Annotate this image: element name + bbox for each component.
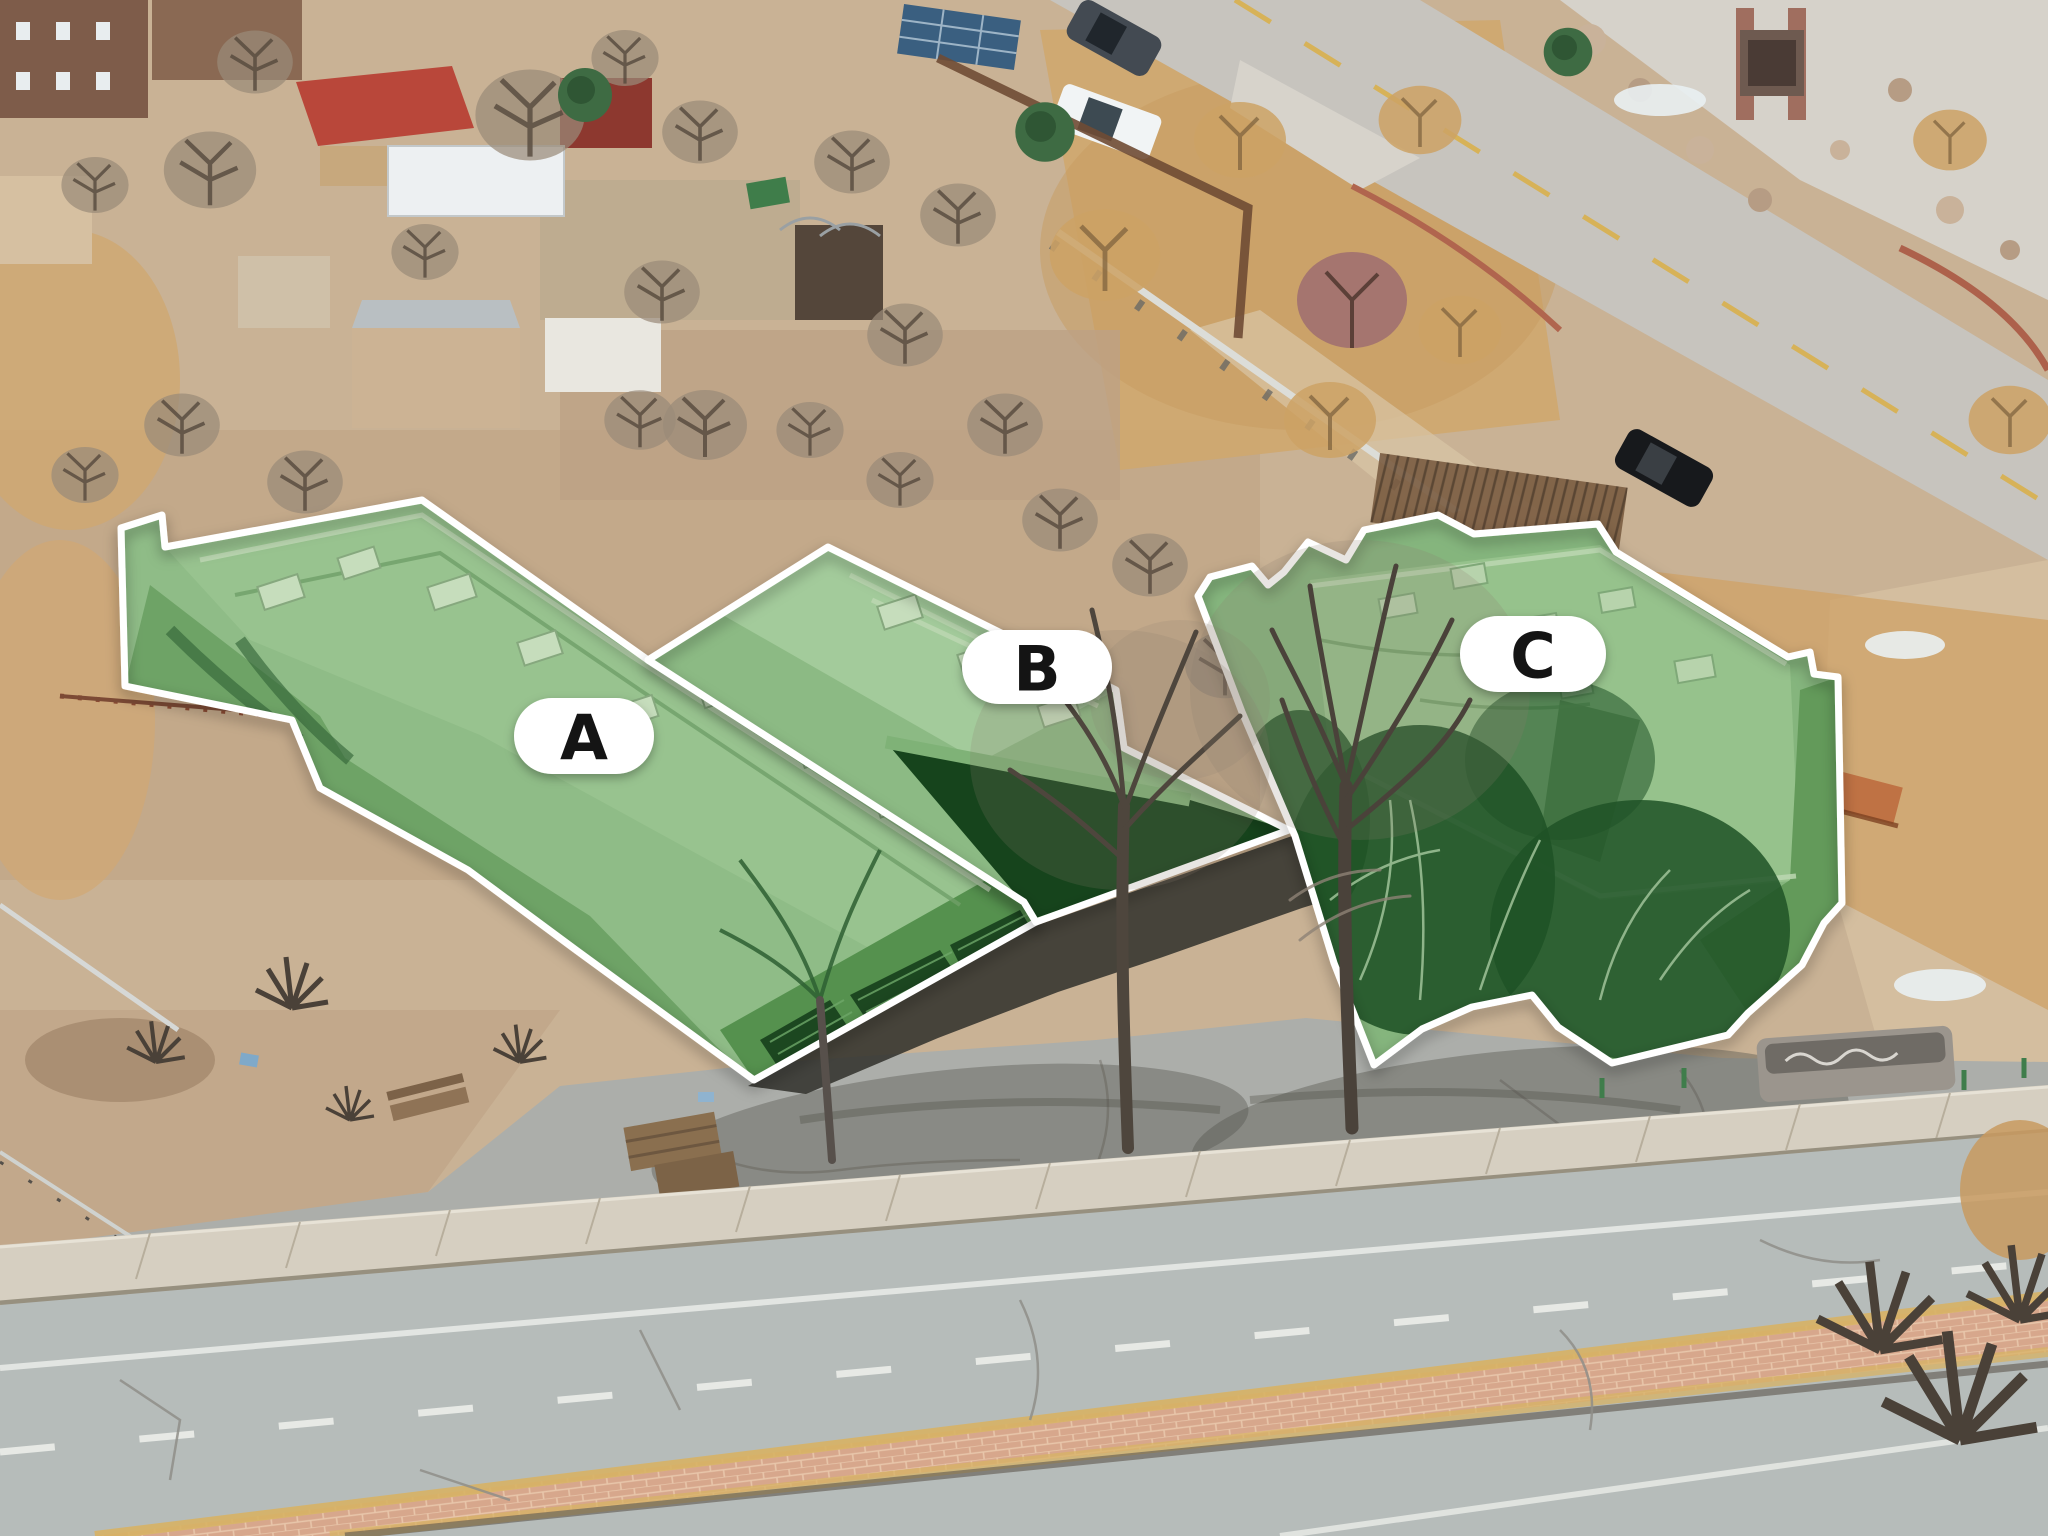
label-b-text: B xyxy=(1013,633,1060,706)
white-shed xyxy=(545,318,661,392)
label-pill-a: A xyxy=(514,698,654,775)
adobe-house xyxy=(352,328,520,428)
blue-debris xyxy=(698,1092,714,1102)
dark-shed xyxy=(795,225,883,320)
apartment-building xyxy=(0,0,148,118)
label-c-text: C xyxy=(1510,620,1556,693)
snow-patch xyxy=(1865,631,1945,659)
aerial-photo: A B C xyxy=(0,0,2048,1536)
snow-patch xyxy=(1894,969,1986,1001)
label-pill-c: C xyxy=(1460,616,1606,693)
rock-planter xyxy=(1756,1025,1956,1103)
purple-tree xyxy=(1297,252,1407,348)
aerial-photo-stage: A B C xyxy=(0,0,2048,1536)
label-pill-b: B xyxy=(962,630,1112,706)
label-a-text: A xyxy=(560,702,608,775)
snow-patch xyxy=(1614,84,1706,116)
